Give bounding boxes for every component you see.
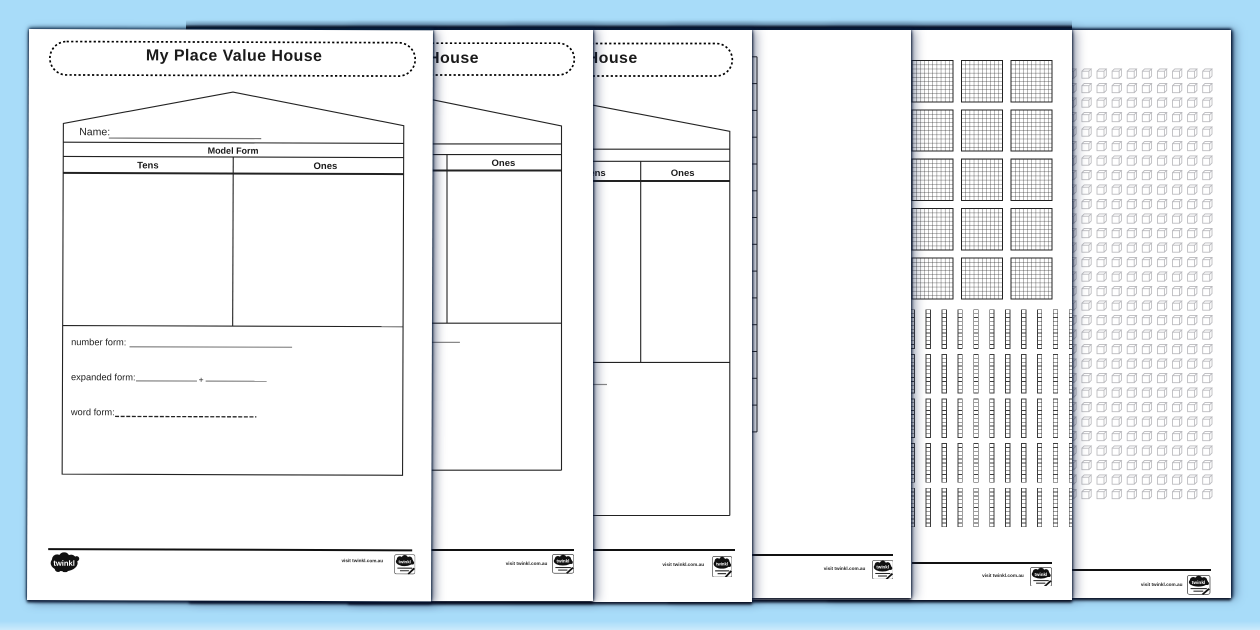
svg-text:twinkl: twinkl xyxy=(53,559,75,568)
svg-text:twinkl: twinkl xyxy=(399,559,411,564)
svg-text:twinkl: twinkl xyxy=(1035,572,1048,577)
svg-text:twinkl: twinkl xyxy=(876,565,889,570)
svg-text:twinkl: twinkl xyxy=(557,559,570,564)
svg-text:twinkl: twinkl xyxy=(1192,580,1206,585)
svg-text:twinkl: twinkl xyxy=(716,561,728,566)
